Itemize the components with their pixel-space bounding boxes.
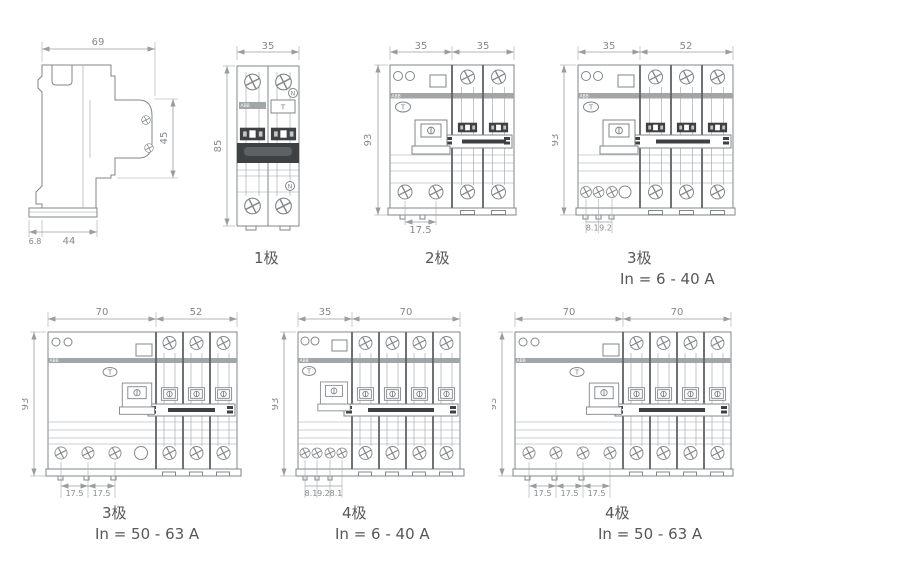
- terminal-screw: [429, 185, 443, 199]
- indicator-circle: [64, 338, 72, 346]
- caption-pole4-large-rating: In = 50 - 63 A: [598, 524, 702, 545]
- pole4-large-drawing: 70 70 93 ABB T: [492, 306, 744, 506]
- base-strip: [513, 469, 733, 476]
- dim-label-width-right: 52: [190, 307, 203, 318]
- status-window: [332, 340, 347, 351]
- indicator-circle: [406, 72, 415, 81]
- terminal-screw: [245, 198, 261, 214]
- terminal-screw: [82, 447, 94, 459]
- indicator-circle: [311, 337, 319, 345]
- dim-label-pitch: 17.5: [588, 489, 606, 498]
- dim-label-pitch: 17.5: [93, 489, 111, 498]
- dim-label-pitch: 17.5: [534, 489, 552, 498]
- base-strip: [296, 469, 464, 476]
- rcd-toggle: [600, 120, 638, 154]
- pole1-drawing: 35 85 N ABB T N: [213, 40, 313, 236]
- test-button-label: T: [280, 104, 286, 112]
- test-button-label: T: [588, 104, 594, 112]
- dim-label-height: 93: [492, 398, 499, 411]
- dim-label-offset: 6.8: [29, 237, 42, 246]
- dim-label-width-left: 35: [603, 41, 616, 52]
- caption-pole3-small-label: 3极: [620, 248, 715, 269]
- neutral-mark-label: N: [288, 183, 293, 190]
- caption-pole4-large: 4极 In = 50 - 63 A: [598, 503, 702, 545]
- dim-label-pitch: 17.5: [409, 225, 431, 236]
- terminal-screw: [337, 448, 347, 458]
- indicator-circle: [531, 338, 539, 346]
- brand-band: [578, 93, 733, 99]
- rating-window: [271, 128, 296, 141]
- pole3-large-drawing: 70 52 93 ABB T 17.5: [22, 306, 254, 506]
- indicator-circle: [519, 338, 527, 346]
- dim-label-width: 35: [262, 41, 275, 52]
- datasheet-canvas: 69 45 6.8 44 35 85 N A: [0, 0, 900, 580]
- terminal-screw: [550, 447, 562, 459]
- dim-label-width-left: 70: [96, 307, 109, 318]
- brand-label: ABB: [300, 358, 309, 364]
- caption-pole3-large: 3极 In = 50 - 63 A: [95, 503, 199, 545]
- dim-label-height: 93: [272, 398, 281, 411]
- sealing-hole: [135, 447, 148, 460]
- neutral-mark-label: N: [291, 90, 296, 97]
- test-button-label: T: [400, 104, 406, 112]
- terminal-screw: [145, 144, 154, 153]
- caption-pole3-large-label: 3极: [95, 503, 199, 524]
- dim-label-width-right: 70: [671, 307, 684, 318]
- brand-label: ABB: [392, 94, 401, 100]
- indicator-circle: [301, 337, 309, 345]
- caption-pole2: 2极: [418, 248, 450, 269]
- brand-label: ABB: [580, 94, 589, 100]
- dim-label-width: 69: [92, 37, 105, 48]
- dim-label-width-left: 35: [319, 307, 332, 318]
- brand-label: ABB: [517, 358, 526, 364]
- base-strip: [46, 469, 241, 476]
- caption-pole3-small: 3极 In = 6 - 40 A: [620, 248, 715, 290]
- terminal-screw: [523, 447, 535, 459]
- caption-pole1: 1极: [247, 248, 279, 269]
- brand-label: ABB: [50, 358, 59, 364]
- dim-label-pitch: 17.5: [66, 489, 84, 498]
- dim-label-height: 93: [363, 134, 374, 147]
- rcd-toggle: [412, 120, 450, 154]
- dim-label-pitch: 9.2: [599, 224, 612, 233]
- terminal-screw: [607, 187, 618, 198]
- dim-label-height: 93: [22, 398, 31, 411]
- dim-label-pitch: 17.5: [561, 489, 579, 498]
- sealing-hole: [619, 186, 631, 198]
- dim-label-depth: 44: [63, 236, 76, 247]
- dim-label-width-right: 35: [477, 41, 490, 52]
- brand-label: ABB: [241, 103, 250, 109]
- brand-band: [48, 358, 237, 363]
- terminal-screw: [312, 448, 322, 458]
- dim-label-pitch: 8.1: [586, 224, 599, 233]
- terminal-screw: [245, 74, 261, 90]
- dim-label-pitch: 8.1: [330, 489, 343, 498]
- test-button-label: T: [574, 369, 580, 377]
- terminal-screw: [577, 447, 589, 459]
- indicator-circle: [394, 72, 403, 81]
- terminal-screw: [325, 448, 335, 458]
- status-window: [603, 344, 619, 356]
- rating-window: [240, 128, 265, 141]
- indicator-circle: [594, 72, 603, 81]
- pole4-small-drawing: 35 70 93 ABB T: [272, 306, 472, 506]
- test-button-label: T: [306, 368, 312, 376]
- base-plate: [29, 208, 97, 217]
- terminal-screw: [398, 185, 412, 199]
- pole3-small-drawing: 35 52 93 ABB T 8.1 9.: [552, 40, 752, 240]
- toggle-handle: [244, 147, 292, 156]
- terminal-screw: [604, 447, 616, 459]
- terminal-screw: [593, 187, 604, 198]
- breaker-side-outline: [36, 65, 152, 208]
- dim-label-pitch: 9.2: [317, 489, 330, 498]
- side-view-drawing: 69 45 6.8 44: [22, 36, 196, 251]
- rcd-toggle: [120, 383, 155, 414]
- rcd-toggle: [318, 382, 350, 411]
- caption-pole1-label: 1极: [247, 248, 279, 269]
- caption-pole2-label: 2极: [418, 248, 450, 269]
- caption-pole4-small: 4极 In = 6 - 40 A: [335, 503, 430, 545]
- dim-label-width-left: 70: [563, 307, 576, 318]
- test-button-label: T: [107, 369, 113, 377]
- terminal-screw: [300, 448, 310, 458]
- dim-label-pitch: 8.1: [305, 489, 318, 498]
- terminal-screw: [276, 74, 292, 90]
- caption-pole4-large-label: 4极: [598, 503, 702, 524]
- indicator-circle: [52, 338, 60, 346]
- caption-pole4-small-label: 4极: [335, 503, 430, 524]
- caption-pole3-large-rating: In = 50 - 63 A: [95, 524, 199, 545]
- dim-label-width-left: 35: [415, 41, 428, 52]
- terminal-screw: [55, 447, 67, 459]
- rcd-toggle: [587, 383, 622, 414]
- status-window: [618, 75, 634, 87]
- dim-label-height: 93: [552, 134, 561, 147]
- dim-label-width-right: 70: [400, 307, 413, 318]
- status-window: [136, 344, 152, 356]
- terminal-screw: [276, 198, 292, 214]
- dim-label-width-right: 52: [680, 41, 693, 52]
- terminal-screw: [142, 116, 151, 125]
- indicator-circle: [582, 72, 591, 81]
- caption-pole3-small-rating: In = 6 - 40 A: [620, 269, 715, 290]
- dim-label-height: 85: [213, 140, 224, 153]
- pole2-drawing: 35 35 93 ABB T 17.5: [362, 40, 530, 240]
- caption-pole4-small-rating: In = 6 - 40 A: [335, 524, 430, 545]
- dim-label-height: 45: [159, 132, 170, 145]
- terminal-screw: [581, 187, 592, 198]
- status-window: [430, 75, 446, 87]
- terminal-screw: [109, 447, 121, 459]
